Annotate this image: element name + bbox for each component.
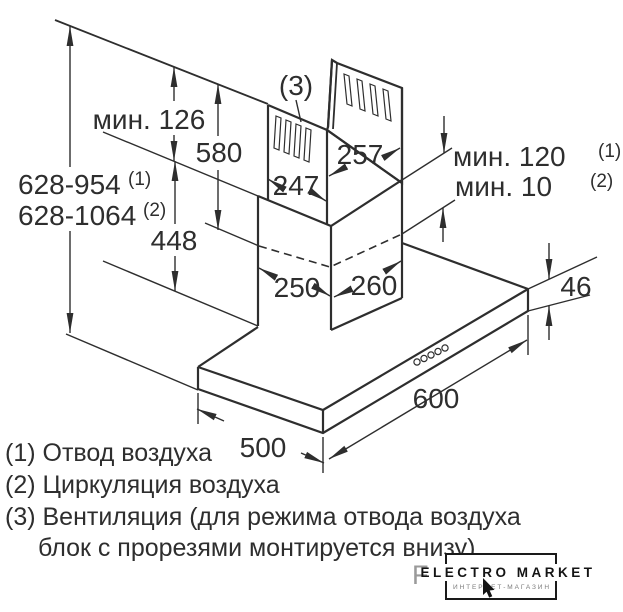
dim-46: 46 <box>528 243 597 340</box>
dim-label-250: 250 <box>274 272 321 303</box>
callout-3-label: (3) <box>279 70 313 101</box>
legend-item-2: (2) Циркуляция воздуха <box>5 471 280 499</box>
legend-item-3-line-2: блок с прорезями монтируется внизу) <box>38 534 475 562</box>
dim-label-600: 600 <box>413 383 460 414</box>
dim-label-247: 247 <box>273 170 320 201</box>
ceiling-line <box>55 20 268 104</box>
dim-247: 247 <box>268 170 326 201</box>
dim-min-120-10: мин. 120 (1) мин. 10 (2) <box>402 116 621 242</box>
sup-min-120: (1) <box>598 141 621 162</box>
dim-min-126: мин. 126 <box>93 67 206 161</box>
vent-slots-left <box>274 116 311 162</box>
dim-label-580: 580 <box>196 137 243 168</box>
watermark-title: ELECTRO MARKET <box>421 565 596 580</box>
callout-3: (3) <box>279 70 313 122</box>
dim-label-257: 257 <box>337 139 384 170</box>
sup-total-exhaust: (1) <box>128 169 151 190</box>
dim-label-min-10: мин. 10 <box>455 171 552 202</box>
dim-257: 257 <box>329 139 400 176</box>
dim-label-min-120: мин. 120 <box>453 141 566 172</box>
sup-min-10: (2) <box>590 171 613 192</box>
dim-label-min-126: мин. 126 <box>93 104 206 135</box>
dim-label-46: 46 <box>560 271 591 302</box>
legend-item-1: (1) Отвод воздуха <box>5 439 212 467</box>
dim-600: 600 <box>323 315 528 473</box>
sup-total-recirc: (2) <box>143 200 166 221</box>
dim-label-500: 500 <box>240 432 287 463</box>
dim-250: 250 <box>259 268 330 303</box>
legend-item-3-line-1: (3) Вентиляция (для режима отвода воздух… <box>5 503 521 531</box>
dim-label-260: 260 <box>351 270 398 301</box>
dim-total-height: 628-954 (1) 628-1064 (2) <box>18 26 198 390</box>
dim-label-448: 448 <box>151 225 198 256</box>
dim-label-total-exhaust: 628-954 <box>18 169 121 200</box>
watermark-subtitle: ИНТЕРНЕТ-МАГАЗИН <box>453 584 551 591</box>
hood-installation-diagram: (3) 628-954 (1) 628-1064 (2) мин. 126 58… <box>0 0 623 612</box>
dim-label-total-recirc: 628-1064 <box>18 200 136 231</box>
dim-260: 260 <box>334 261 401 301</box>
